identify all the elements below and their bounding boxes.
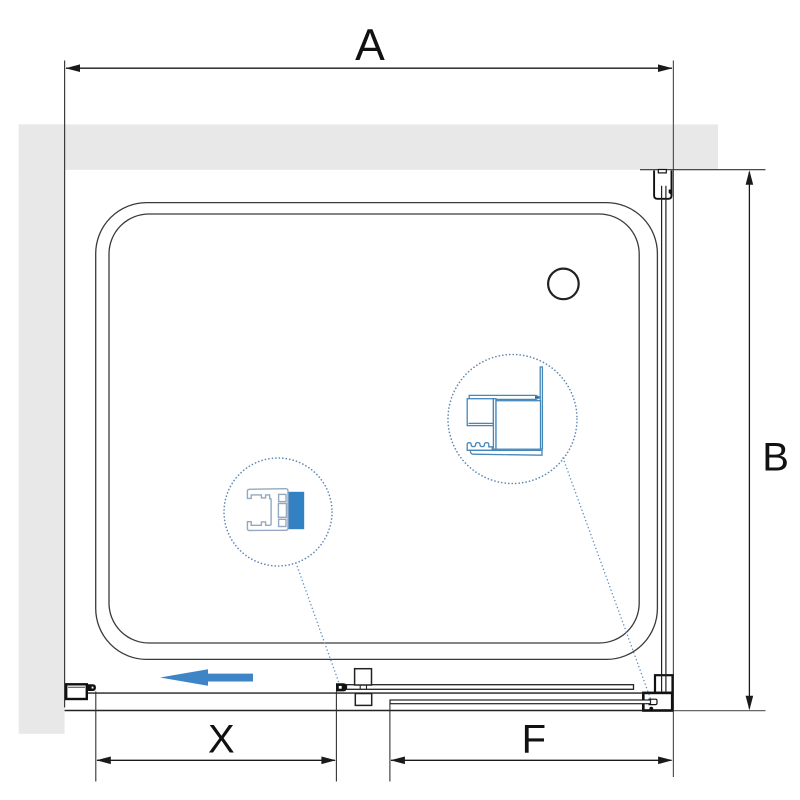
svg-text:X: X — [208, 718, 235, 762]
svg-text:A: A — [355, 21, 385, 70]
svg-text:F: F — [522, 718, 546, 762]
svg-text:B: B — [762, 435, 789, 479]
